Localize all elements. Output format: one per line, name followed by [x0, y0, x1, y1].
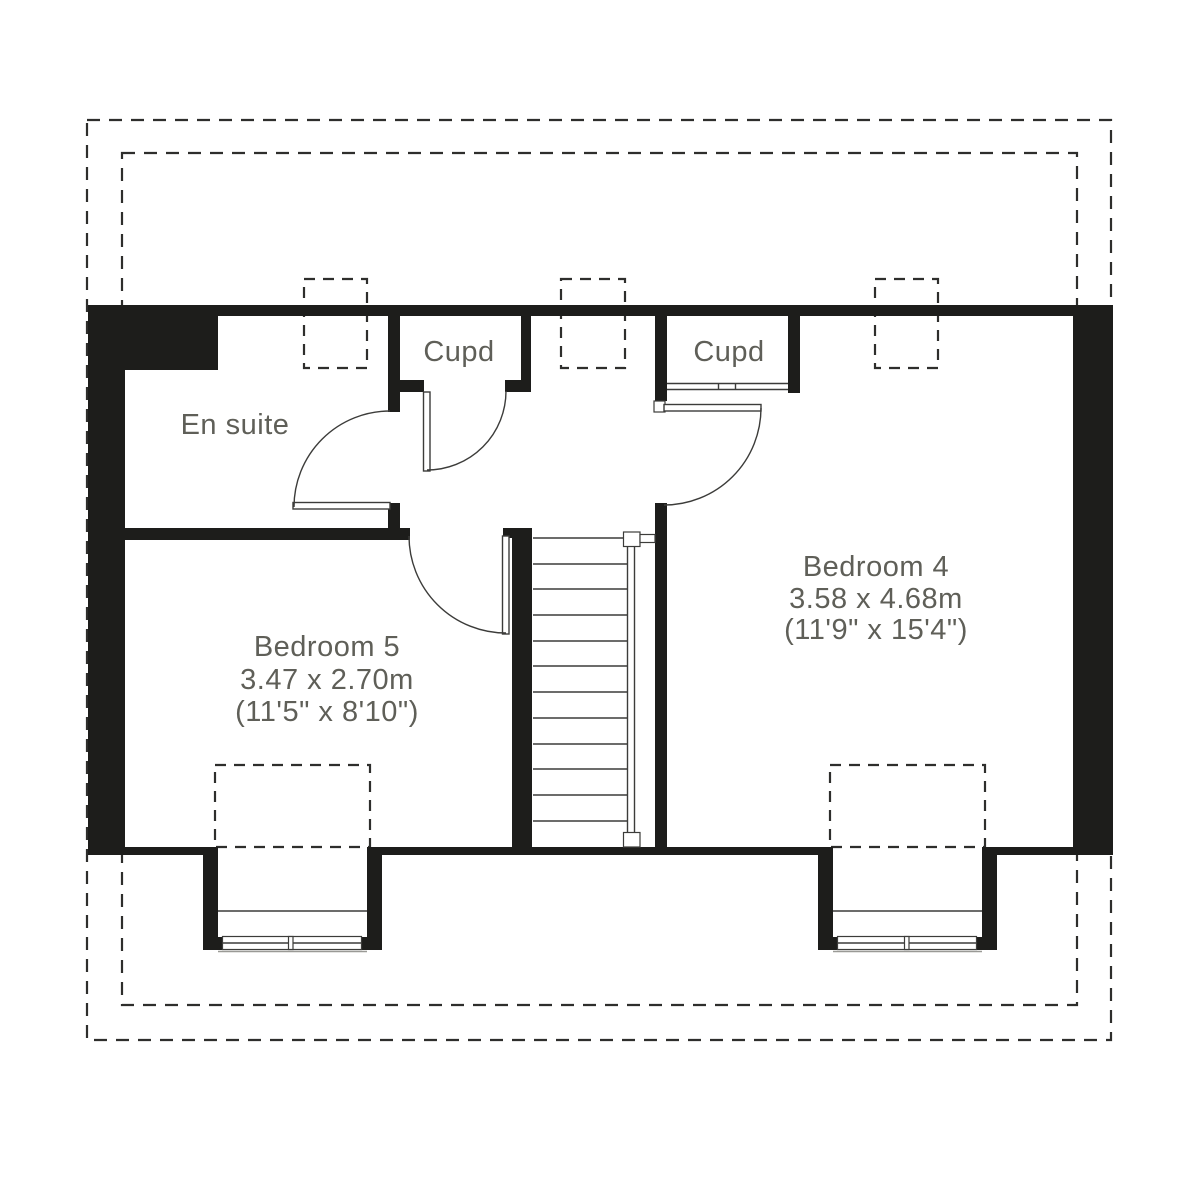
- label-bedroom5-imperial: (11'5" x 8'10"): [235, 696, 419, 728]
- wall-stairwell-right: [655, 503, 667, 847]
- door-bedroom4-leaf: [664, 405, 761, 412]
- dormer-left-cheek-b: [367, 847, 382, 950]
- dormer-right-interior: [818, 847, 997, 950]
- building-interior: [88, 305, 1113, 855]
- label-bedroom4-imperial: (11'9" x 15'4"): [784, 614, 968, 646]
- dormer-left-interior: [203, 847, 382, 950]
- label-bedroom4-metric: 3.58 x 4.68m: [789, 583, 963, 615]
- label-bedroom5-metric: 3.47 x 2.70m: [240, 664, 414, 696]
- dormer-right-window-nib-b: [977, 937, 982, 950]
- wall-bottom-left: [121, 847, 203, 855]
- wall-right: [1073, 305, 1113, 855]
- label-en-suite: En suite: [181, 409, 290, 441]
- wall-ensuite-corner-block: [88, 305, 218, 370]
- label-cupboard-left: Cupd: [423, 336, 494, 368]
- door-ensuite-leaf: [293, 503, 390, 510]
- wall-bottom-middle: [382, 847, 818, 855]
- wall-bottom-right: [997, 847, 1073, 855]
- floor-plan-drawing: En suite Cupd Cupd Bedroom 5 3.47 x 2.70…: [0, 0, 1200, 1200]
- stair-newel-top: [624, 532, 641, 547]
- wall-cupboard-right-right-side: [788, 305, 800, 393]
- wall-cupboard-right-left-side: [655, 305, 667, 401]
- door-bedroom5-leaf: [503, 536, 510, 634]
- wall-left: [88, 305, 125, 855]
- wall-ensuite-bottom: [125, 528, 410, 540]
- dormer-right-cheek-b: [982, 847, 997, 950]
- wall-cupboard-left-nib-a: [400, 380, 424, 392]
- wall-top: [88, 305, 1113, 316]
- dormer-left-cheek-a: [203, 847, 218, 950]
- label-bedroom5-name: Bedroom 5: [254, 631, 400, 663]
- wall-stairwell-left: [512, 528, 532, 847]
- wall-cupboard-left-right-side: [521, 305, 531, 392]
- window-right-mullion: [905, 937, 910, 950]
- stair-newel-bottom: [624, 833, 641, 848]
- dormer-left-window-nib-b: [362, 937, 367, 950]
- stair-rail-connector: [640, 535, 655, 543]
- wall-ensuite-right-upper: [388, 305, 400, 412]
- door-cupboard-left-leaf: [424, 392, 431, 471]
- window-left-mullion: [289, 937, 294, 950]
- label-cupboard-right: Cupd: [693, 336, 764, 368]
- label-bedroom4-name: Bedroom 4: [803, 551, 949, 583]
- floor-plan-canvas: En suite Cupd Cupd Bedroom 5 3.47 x 2.70…: [0, 0, 1200, 1200]
- dormer-right-cheek-a: [818, 847, 833, 950]
